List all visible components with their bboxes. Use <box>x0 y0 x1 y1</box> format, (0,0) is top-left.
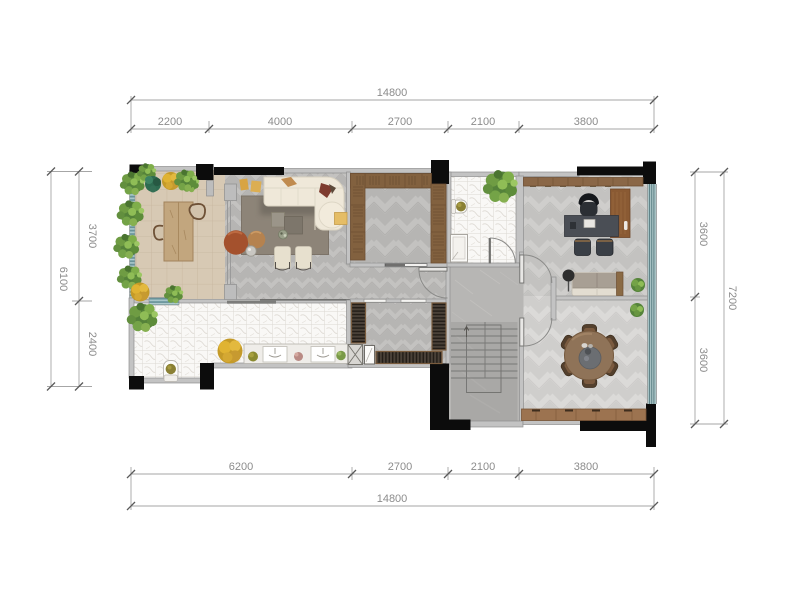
svg-text:2700: 2700 <box>388 461 412 473</box>
svg-text:2100: 2100 <box>471 116 495 128</box>
svg-text:3700: 3700 <box>86 224 98 248</box>
svg-text:6200: 6200 <box>229 461 253 473</box>
svg-text:4000: 4000 <box>268 116 292 128</box>
svg-text:2200: 2200 <box>158 116 182 128</box>
svg-text:2700: 2700 <box>388 116 412 128</box>
svg-text:2400: 2400 <box>86 332 98 356</box>
svg-text:14800: 14800 <box>377 87 408 99</box>
svg-text:7200: 7200 <box>726 286 738 310</box>
svg-text:2100: 2100 <box>471 461 495 473</box>
svg-text:6100: 6100 <box>57 267 69 291</box>
svg-text:3800: 3800 <box>574 116 598 128</box>
svg-text:3600: 3600 <box>697 348 709 372</box>
svg-text:3600: 3600 <box>697 222 709 246</box>
svg-text:3800: 3800 <box>574 461 598 473</box>
svg-text:14800: 14800 <box>377 493 408 505</box>
